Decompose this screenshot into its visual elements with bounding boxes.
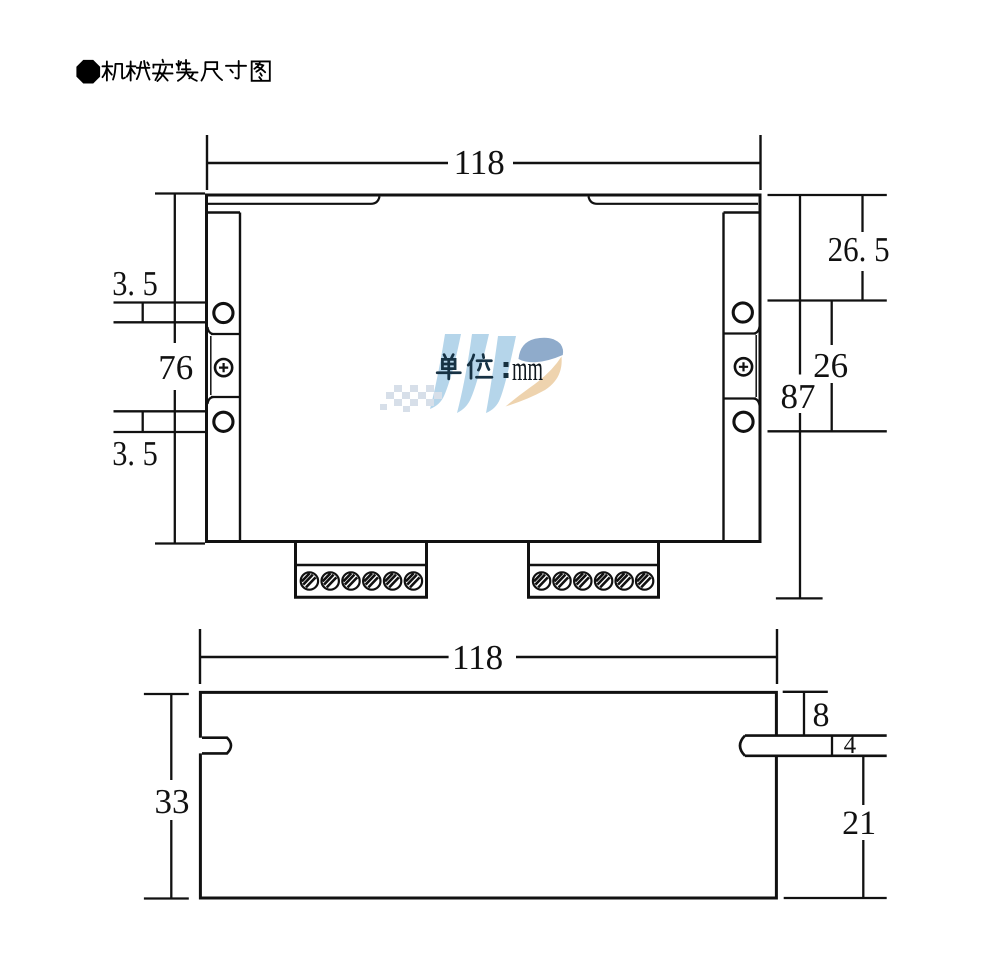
svg-text:33: 33	[155, 782, 190, 821]
svg-text:4: 4	[844, 732, 857, 759]
svg-text:mm: mm	[512, 349, 543, 388]
svg-text:26: 26	[813, 346, 848, 385]
svg-text:26. 5: 26. 5	[828, 230, 890, 269]
svg-text:21: 21	[842, 805, 876, 842]
svg-text:118: 118	[454, 143, 505, 182]
svg-text:3. 5: 3. 5	[112, 434, 158, 473]
svg-text:8: 8	[813, 697, 830, 734]
svg-text:3. 5: 3. 5	[112, 264, 158, 303]
svg-text:118: 118	[452, 638, 503, 677]
svg-text:76: 76	[158, 348, 193, 387]
svg-text:87: 87	[781, 377, 816, 416]
